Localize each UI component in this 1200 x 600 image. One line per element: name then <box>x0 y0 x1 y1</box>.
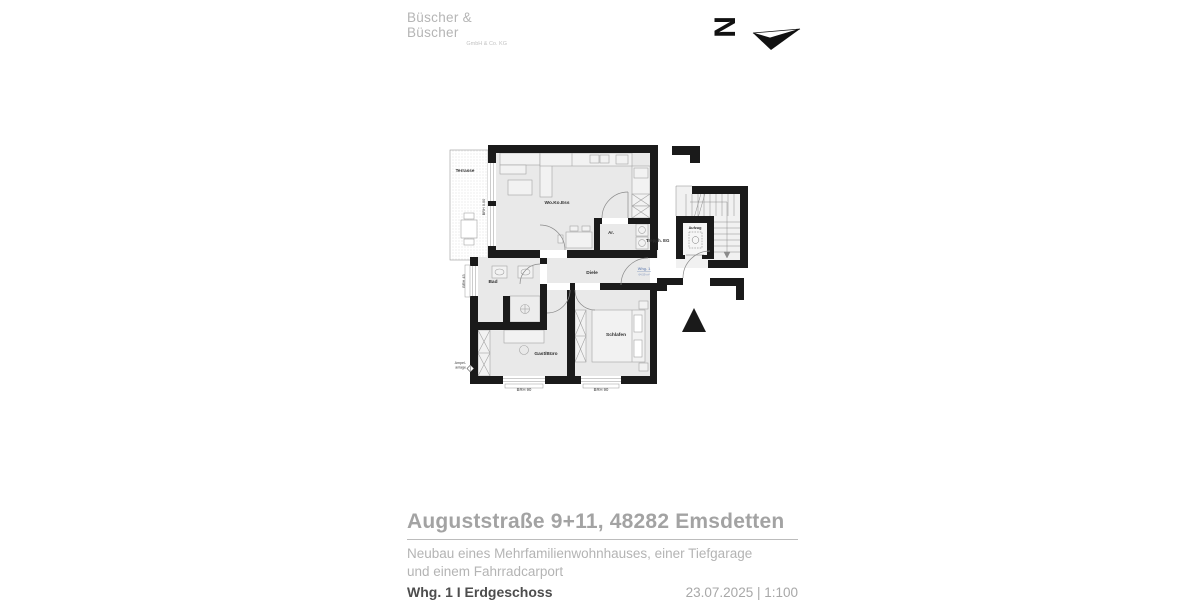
floor-plan: Terrasse Wo.Ko.Ess Ar. Trepph. EG Aufzug… <box>440 138 810 398</box>
room-label-wokoess: Wo.Ko.Ess <box>545 200 570 206</box>
title-block: Auguststraße 9+11, 48282 Emsdetten Neuba… <box>407 510 798 600</box>
entrance-marker-icon <box>682 308 706 332</box>
apartment-tag: Whg. 1 64.59 m² <box>637 267 651 277</box>
sheet-title: Whg. 1 I Erdgeschoss <box>407 584 552 600</box>
title-divider <box>407 539 798 540</box>
north-letter: N <box>708 16 741 38</box>
room-label-diele: Diele <box>586 270 598 276</box>
project-address: Auguststraße 9+11, 48282 Emsdetten <box>407 510 798 534</box>
annotation-brh-window-left: BRH 90 <box>517 387 532 392</box>
date-and-scale: 23.07.2025 | 1:100 <box>686 585 798 600</box>
apartment-area-label: 64.59 m² <box>638 273 649 277</box>
architect-logo-name: Büscher & Büscher <box>407 10 511 40</box>
annotation-brh-bad: BRH 45 <box>462 274 466 287</box>
north-needle-icon <box>753 29 800 50</box>
room-label-aufzug: Aufzug <box>689 226 703 230</box>
room-label-gastbuero: Gast/Büro <box>534 351 557 357</box>
project-description-line1: Neubau eines Mehrfamilienwohnhauses, ein… <box>407 545 798 563</box>
coffee-table-symbol <box>508 180 532 195</box>
room-label-treppenhaus: Trepph. EG <box>646 238 670 243</box>
room-label-bad: Bad <box>488 279 497 285</box>
apartment-number-label: Whg. 1 <box>638 267 650 271</box>
project-description-line2: und einem Fahrradcarport <box>407 563 798 581</box>
annotation-ampel-line2: anlage <box>455 366 466 370</box>
room-label-schlafen: Schlafen <box>606 332 626 338</box>
room-label-abstellraum: Ar. <box>608 230 614 235</box>
architect-logo-suffix: GmbH & Co. KG <box>407 41 511 47</box>
architect-logo: Büscher & Büscher GmbH & Co. KG <box>407 10 511 47</box>
shower-symbol <box>510 296 540 322</box>
room-label-terrasse: Terrasse <box>456 168 475 173</box>
north-arrow: N <box>700 5 810 60</box>
plan-sheet: Büscher & Büscher GmbH & Co. KG N <box>0 0 1200 600</box>
annotation-ampel-line1: Ampel- <box>455 361 467 365</box>
sheet-info-row: Whg. 1 I Erdgeschoss 23.07.2025 | 1:100 <box>407 584 798 600</box>
tall-cabinet-symbol <box>632 194 650 218</box>
annotation-brh-window-right: BRH 90 <box>594 387 609 392</box>
annotation-brh-terrasse: BRH 0.00 <box>482 199 486 215</box>
